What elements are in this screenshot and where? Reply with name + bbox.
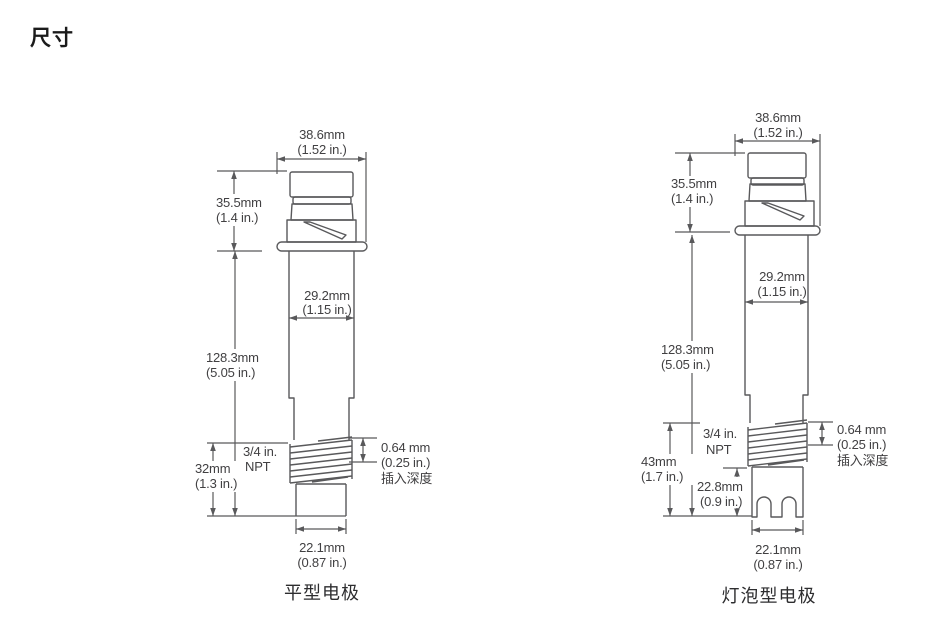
flat-cap-collar bbox=[287, 220, 356, 242]
bulb-cap-height-in: (1.4 in.) bbox=[671, 191, 713, 206]
bulb-caption: 灯泡型电极 bbox=[722, 586, 817, 606]
flat-electrode-drawing: 38.6mm (1.52 in.) 35.5mm (1.4 in.) 128.3… bbox=[191, 127, 432, 603]
flat-cap-height-in: (1.4 in.) bbox=[216, 210, 258, 225]
bulb-cap-height-mm: 35.5mm bbox=[671, 176, 717, 191]
flat-body-length-mm: 128.3mm bbox=[206, 350, 259, 365]
flat-tip-width-mm: 22.1mm bbox=[299, 540, 345, 555]
bulb-top-width-mm: 38.6mm bbox=[755, 110, 801, 125]
flat-top-width-mm: 38.6mm bbox=[299, 127, 345, 142]
bulb-thread-type: NPT bbox=[706, 442, 732, 457]
flat-flange bbox=[277, 242, 367, 251]
flat-insertion-label: 插入深度 bbox=[381, 471, 432, 486]
flat-body-length-in: (5.05 in.) bbox=[206, 365, 255, 380]
flat-cap-mid bbox=[291, 204, 353, 220]
flat-thread-size: 3/4 in. bbox=[243, 444, 277, 459]
bulb-top-width-in: (1.52 in.) bbox=[753, 125, 802, 140]
dimension-diagram: 38.6mm (1.52 in.) 35.5mm (1.4 in.) 128.3… bbox=[0, 0, 950, 644]
bulb-cap-knob bbox=[748, 153, 806, 178]
bulb-guard-length-in: (0.9 in.) bbox=[700, 494, 742, 509]
bulb-lower-length-in: (1.7 in.) bbox=[641, 469, 683, 484]
flat-caption: 平型电极 bbox=[284, 583, 360, 603]
bulb-body-width-in: (1.15 in.) bbox=[757, 284, 806, 299]
bulb-insertion-mm: 0.64 mm bbox=[837, 422, 886, 437]
bulb-dim-top-width-ext bbox=[735, 134, 820, 226]
flat-body bbox=[289, 251, 354, 440]
flat-cap-groove bbox=[293, 197, 351, 204]
bulb-tip-width-mm: 22.1mm bbox=[755, 542, 801, 557]
flat-tip-width-in: (0.87 in.) bbox=[297, 555, 346, 570]
bulb-threads bbox=[748, 420, 807, 466]
flat-top-width-in: (1.52 in.) bbox=[297, 142, 346, 157]
bulb-body-length-mm: 128.3mm bbox=[661, 342, 714, 357]
bulb-body-width-mm: 29.2mm bbox=[759, 269, 805, 284]
flat-body-width-in: (1.15 in.) bbox=[302, 302, 351, 317]
bulb-flange bbox=[735, 226, 820, 235]
flat-thread-type: NPT bbox=[245, 459, 271, 474]
bulb-dim-tip-ext bbox=[752, 520, 803, 535]
flat-dim-tip-ext bbox=[296, 519, 346, 534]
bulb-thread-size: 3/4 in. bbox=[703, 426, 737, 441]
bulb-cap-collar bbox=[745, 201, 814, 226]
bulb-cap-mid bbox=[749, 184, 806, 201]
flat-insertion-in: (0.25 in.) bbox=[381, 455, 430, 470]
flat-tip-tube bbox=[296, 484, 346, 516]
flat-lower-length-in: (1.3 in.) bbox=[195, 476, 237, 491]
flat-threads bbox=[290, 437, 352, 484]
bulb-insertion-label: 插入深度 bbox=[837, 453, 888, 468]
flat-cap-slash bbox=[304, 222, 346, 239]
bulb-cap-slash bbox=[762, 203, 804, 220]
flat-body-width-mm: 29.2mm bbox=[304, 288, 350, 303]
bulb-body-length-in: (5.05 in.) bbox=[661, 357, 710, 372]
bulb-electrode-drawing: 38.6mm (1.52 in.) 35.5mm (1.4 in.) 128.3… bbox=[636, 110, 888, 606]
flat-lower-length-mm: 32mm bbox=[195, 461, 230, 476]
dimension-page: 尺寸 38.6mm (1.5 bbox=[0, 0, 950, 644]
flat-cap-knob bbox=[290, 172, 353, 197]
bulb-lower-length-mm: 43mm bbox=[641, 454, 676, 469]
bulb-guard-length-mm: 22.8mm bbox=[697, 479, 743, 494]
flat-cap-height-mm: 35.5mm bbox=[216, 195, 262, 210]
bulb-dim-insertion-ext bbox=[808, 422, 833, 445]
bulb-body bbox=[745, 235, 808, 423]
bulb-insertion-in: (0.25 in.) bbox=[837, 437, 886, 452]
flat-insertion-mm: 0.64 mm bbox=[381, 440, 430, 455]
bulb-tip-width-in: (0.87 in.) bbox=[753, 557, 802, 572]
bulb-guard-tube bbox=[752, 467, 803, 517]
